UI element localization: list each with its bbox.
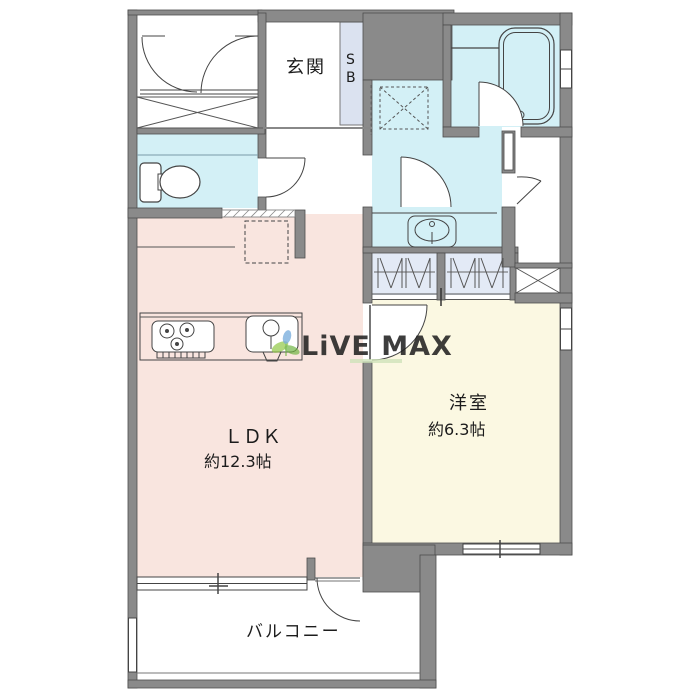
porch-door-arc-right [201, 36, 258, 93]
toilet-door-arc [266, 158, 305, 197]
wall-mass-top [363, 13, 452, 80]
closet-2-floor [445, 253, 510, 295]
closet-1-floor [372, 253, 437, 295]
balcony-door-arc [315, 578, 360, 621]
wall-top-bath [443, 13, 572, 25]
floorplan-canvas: 玄関 S B ＬＤＫ 約12.3帖 洋室 約6.3帖 バルコニー LiVE MA… [0, 0, 700, 700]
wall-bath-bottom-l [443, 127, 479, 137]
floorplan: 玄関 S B ＬＤＫ 約12.3帖 洋室 約6.3帖 バルコニー LiVE MA… [0, 0, 700, 700]
watermark-tagline-strip [350, 359, 402, 363]
label-ldk-size: 約12.3帖 [204, 452, 272, 471]
label-shoebox-s: S [346, 52, 355, 68]
wall-divider-b [363, 207, 372, 303]
porch-door-arc-left [142, 37, 197, 92]
wall-balcony-bottom [128, 680, 436, 688]
wall-toilet-right-a [258, 13, 266, 158]
wall-corridor-left-b [502, 207, 515, 267]
wall-kitchen-stub [295, 210, 305, 258]
label-ldk: ＬＤＫ [224, 426, 281, 448]
washroom-niche [504, 133, 513, 170]
meter-box [137, 97, 258, 128]
wall-top-left [128, 10, 262, 15]
storage-x-closet [516, 268, 560, 293]
label-entrance: 玄関 [286, 57, 326, 78]
label-balcony: バルコニー [246, 622, 341, 642]
wall-balcony-stub [307, 558, 315, 580]
western-side-window [561, 308, 572, 350]
wall-ldk-top [128, 208, 222, 218]
wall-bath-left [443, 25, 451, 127]
wall-left [128, 10, 137, 688]
porch-area [137, 36, 258, 128]
balcony-side-opening [129, 618, 137, 672]
wall-right [560, 13, 572, 555]
wall-bath-bottom-r [521, 127, 572, 137]
label-western: 洋室 [449, 393, 489, 414]
label-shoebox-b: B [346, 70, 356, 86]
ldk-entry-opening [222, 210, 295, 217]
wall-xcloset-top [515, 263, 572, 268]
stove-icon [152, 321, 214, 358]
wall-toilet-top [137, 128, 265, 134]
bathroom-window [561, 50, 572, 88]
corridor-door-arc [517, 177, 541, 204]
wall-washroom-bottom [363, 247, 518, 253]
wall-xcloset-bottom [515, 293, 572, 303]
wall-balcony-right [420, 555, 436, 688]
watermark-text: LiVE MAX [301, 331, 453, 362]
label-western-size: 約6.3帖 [428, 420, 485, 439]
room-ldk-floor [137, 214, 363, 577]
